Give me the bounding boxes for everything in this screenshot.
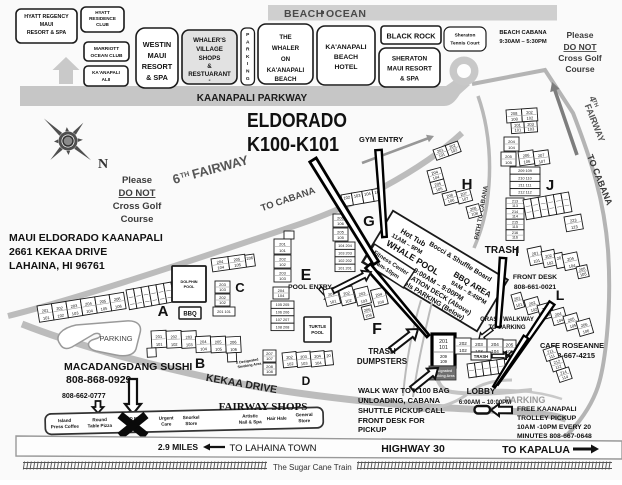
svg-text:CLUB: CLUB	[96, 22, 109, 27]
svg-text:N: N	[98, 157, 108, 172]
svg-text:205: 205	[505, 154, 512, 159]
svg-text:9:30AM – 5:30PM: 9:30AM – 5:30PM	[499, 39, 547, 45]
svg-text:106 206: 106 206	[276, 311, 290, 315]
svg-text:211 111: 211 111	[519, 184, 532, 188]
svg-text:WHALER: WHALER	[272, 45, 300, 52]
svg-text:105 205: 105 205	[276, 303, 290, 307]
svg-text:TRASH: TRASH	[485, 245, 519, 256]
svg-text:101 201: 101 201	[338, 266, 352, 270]
svg-text:SHERATON: SHERATON	[392, 56, 428, 63]
svg-text:VILLAGE: VILLAGE	[196, 46, 223, 53]
svg-text:FAIRWAY SHOPS: FAIRWAY SHOPS	[219, 401, 308, 413]
svg-text:102: 102	[219, 300, 226, 305]
svg-text:107: 107	[266, 356, 273, 361]
svg-text:202: 202	[279, 257, 286, 262]
svg-text:201 101: 201 101	[217, 310, 231, 314]
svg-text:104: 104	[278, 293, 285, 298]
svg-text:204: 204	[508, 139, 515, 144]
svg-text:204: 204	[491, 342, 499, 347]
svg-text:Urgent: Urgent	[159, 415, 174, 420]
svg-text:102: 102	[171, 342, 179, 347]
svg-text:113: 113	[512, 204, 518, 208]
svg-text:214: 214	[512, 210, 518, 214]
svg-text:N: N	[246, 69, 250, 75]
svg-text:107 207: 107 207	[276, 318, 290, 322]
svg-text:10AM -10PM EVERY 20: 10AM -10PM EVERY 20	[517, 424, 591, 431]
svg-text:103: 103	[219, 287, 226, 292]
svg-text:F: F	[372, 321, 382, 338]
svg-text:Artistic: Artistic	[242, 413, 258, 418]
svg-text:103: 103	[527, 126, 535, 132]
svg-text:2.9 MILES: 2.9 MILES	[158, 442, 198, 452]
svg-text:104 204: 104 204	[338, 244, 352, 248]
svg-text:213: 213	[512, 199, 518, 203]
svg-text:Hair Hale: Hair Hale	[267, 416, 287, 421]
svg-text:103: 103	[186, 342, 194, 347]
svg-text:GYM ENTRY: GYM ENTRY	[359, 135, 403, 144]
svg-text:RESORT: RESORT	[142, 62, 173, 71]
svg-text:103 203: 103 203	[338, 252, 352, 256]
svg-text:101: 101	[514, 127, 522, 133]
svg-text:BLACK ROCK: BLACK ROCK	[386, 32, 436, 41]
svg-text:Island: Island	[58, 418, 72, 423]
svg-text:RESORT & SPA: RESORT & SPA	[27, 30, 67, 36]
svg-text:& SPA: & SPA	[146, 73, 168, 82]
svg-text:UNLOADING, CABANA: UNLOADING, CABANA	[358, 396, 441, 405]
svg-text:204: 204	[200, 339, 208, 344]
svg-text:TRASH: TRASH	[368, 347, 396, 356]
svg-text:PARKING: PARKING	[99, 334, 132, 343]
svg-text:DUMPSTERS: DUMPSTERS	[357, 357, 408, 366]
svg-text:202: 202	[526, 110, 534, 116]
svg-text:106: 106	[230, 347, 238, 352]
svg-text:MINUTES 808-667-0648: MINUTES 808-667-0648	[517, 433, 592, 440]
svg-text:205: 205	[506, 343, 514, 348]
svg-text:SHOPS: SHOPS	[199, 55, 221, 62]
svg-text:206: 206	[230, 340, 238, 345]
svg-text:209 109: 209 109	[518, 169, 532, 173]
svg-text:TO KAPALUA: TO KAPALUA	[502, 444, 570, 456]
svg-text:D: D	[302, 374, 311, 388]
svg-text:102: 102	[279, 262, 286, 267]
svg-text:115: 115	[512, 225, 518, 229]
svg-text:MAUI: MAUI	[40, 22, 54, 28]
svg-text:MAUI: MAUI	[148, 51, 167, 60]
svg-text:MACADANGDANG SUSHI: MACADANGDANG SUSHI	[64, 361, 192, 373]
svg-text:208: 208	[511, 111, 519, 117]
svg-text:104: 104	[491, 349, 499, 354]
svg-text:205: 205	[337, 230, 344, 235]
svg-text:-: -	[208, 77, 210, 84]
svg-text:LAHAINA, HI 96761: LAHAINA, HI 96761	[9, 260, 105, 272]
svg-text:202: 202	[170, 334, 178, 339]
svg-text:C: C	[235, 280, 245, 295]
svg-text:Snorkel: Snorkel	[183, 415, 200, 420]
svg-text:210 110: 210 110	[518, 176, 531, 180]
svg-text:Course: Course	[565, 64, 595, 74]
svg-text:POOL: POOL	[311, 330, 324, 335]
svg-text:HOTEL: HOTEL	[334, 64, 357, 71]
svg-text:HYATT: HYATT	[95, 10, 110, 15]
svg-text:212 112: 212 112	[518, 191, 531, 195]
svg-text:ELDORADO: ELDORADO	[247, 110, 347, 132]
svg-text:108: 108	[511, 116, 519, 122]
svg-text:FRONT DESK FOR: FRONT DESK FOR	[358, 416, 425, 425]
svg-text:WESTIN: WESTIN	[143, 40, 171, 49]
svg-text:K100-K101: K100-K101	[247, 134, 339, 156]
svg-text:203: 203	[185, 334, 193, 339]
svg-text:G: G	[363, 213, 375, 230]
svg-text:FRONT DESK: FRONT DESK	[513, 274, 557, 281]
svg-text:MAUI RESORT: MAUI RESORT	[387, 66, 432, 73]
svg-text:RESIDENCE: RESIDENCE	[89, 16, 116, 21]
svg-text:216: 216	[512, 231, 518, 235]
svg-text:Please: Please	[122, 175, 152, 186]
svg-text:109: 109	[440, 359, 448, 364]
svg-text:Please: Please	[567, 30, 594, 40]
svg-text:TO LAHAINA TOWN: TO LAHAINA TOWN	[229, 443, 316, 454]
svg-text:BEACH: BEACH	[284, 8, 324, 20]
svg-text:808-662-0777: 808-662-0777	[62, 393, 106, 400]
svg-text:LOBBY: LOBBY	[467, 387, 496, 396]
svg-text:DO NOT: DO NOT	[119, 188, 156, 199]
svg-text:WALK WAY TO K100 BAG: WALK WAY TO K100 BAG	[358, 386, 450, 395]
svg-text:203: 203	[279, 271, 286, 276]
svg-text:101: 101	[439, 345, 448, 351]
svg-text:105: 105	[505, 160, 512, 165]
svg-text:FREE KAANAPALI: FREE KAANAPALI	[517, 406, 577, 413]
svg-text:Nail & Spa: Nail & Spa	[239, 419, 262, 425]
svg-text:203: 203	[475, 342, 483, 347]
svg-text:105: 105	[215, 346, 223, 351]
svg-text:Tennis Court: Tennis Court	[450, 41, 480, 47]
svg-text:BBQ: BBQ	[183, 312, 197, 318]
svg-text:L: L	[556, 287, 565, 303]
svg-text:A: A	[246, 39, 250, 45]
svg-text:Cross Golf: Cross Golf	[558, 53, 602, 63]
svg-text:114: 114	[512, 214, 518, 218]
svg-text:R: R	[246, 47, 250, 53]
svg-text:B: B	[195, 355, 205, 371]
svg-text:WHALER'S: WHALER'S	[193, 37, 226, 44]
svg-text:116: 116	[512, 236, 518, 240]
svg-text:The Sugar Cane Train: The Sugar Cane Train	[273, 463, 352, 472]
svg-text:Sheraton: Sheraton	[455, 33, 476, 39]
svg-text:104: 104	[508, 145, 515, 150]
svg-text:102: 102	[526, 115, 534, 121]
svg-text:Press Coffee: Press Coffee	[51, 424, 80, 430]
svg-text:103: 103	[279, 276, 286, 281]
svg-text:205: 205	[215, 339, 223, 344]
svg-text:ON: ON	[281, 56, 291, 63]
svg-text:H: H	[462, 176, 473, 193]
svg-text:108: 108	[266, 369, 273, 374]
svg-text:201: 201	[279, 242, 286, 247]
svg-text:Store: Store	[185, 421, 197, 426]
svg-text:GRASS WALKWAY: GRASS WALKWAY	[480, 317, 534, 323]
svg-text:TURTLE: TURTLE	[309, 324, 326, 329]
svg-text:TRASH: TRASH	[474, 354, 488, 359]
svg-text:108 208: 108 208	[276, 325, 290, 329]
svg-text:215: 215	[512, 221, 518, 225]
svg-text:DO NOT: DO NOT	[563, 42, 597, 52]
svg-text:101: 101	[279, 248, 286, 253]
svg-text:SHUTTLE PICKUP CALL: SHUTTLE PICKUP CALL	[358, 406, 445, 415]
svg-text:KAANAPALI PARKWAY: KAANAPALI PARKWAY	[197, 93, 308, 104]
svg-text:105: 105	[337, 235, 344, 240]
svg-text:2661 KEKAA DRIVE: 2661 KEKAA DRIVE	[9, 246, 107, 258]
svg-text:TO PARKING: TO PARKING	[488, 325, 525, 331]
svg-text:Course: Course	[121, 214, 154, 225]
svg-text:808-661-0021: 808-661-0021	[514, 284, 557, 291]
svg-text:KA'ANAPALI: KA'ANAPALI	[325, 44, 366, 51]
svg-text:K: K	[246, 54, 250, 60]
svg-text:BEACH: BEACH	[274, 76, 297, 83]
svg-text:Round: Round	[92, 417, 107, 422]
svg-text:ALII: ALII	[102, 77, 111, 82]
svg-text:A: A	[158, 303, 169, 320]
svg-text:102: 102	[459, 348, 467, 353]
svg-text:MARRIOTT: MARRIOTT	[94, 46, 119, 52]
svg-text:THE: THE	[279, 34, 291, 41]
svg-text:J: J	[546, 177, 554, 194]
svg-text:101: 101	[156, 342, 164, 347]
svg-text:DOLPHIN: DOLPHIN	[180, 280, 197, 284]
svg-text:102 202: 102 202	[338, 259, 352, 263]
svg-text:Store: Store	[298, 418, 310, 423]
svg-text:808-868-0929: 808-868-0929	[66, 374, 132, 386]
svg-text:& SPA: & SPA	[400, 76, 419, 83]
svg-text:OCEAN CLUB: OCEAN CLUB	[91, 53, 124, 59]
svg-text:PICKUP: PICKUP	[358, 425, 386, 434]
svg-text:G: G	[246, 76, 250, 82]
svg-text:OCEAN: OCEAN	[326, 8, 366, 20]
svg-text:BEACH CABANA: BEACH CABANA	[499, 30, 547, 36]
svg-text:Table Pizza: Table Pizza	[88, 423, 113, 429]
svg-text:106: 106	[337, 221, 344, 226]
svg-text:TROLLEY PICKUP: TROLLEY PICKUP	[517, 415, 577, 422]
svg-text:104: 104	[200, 346, 208, 351]
svg-text:&: &	[207, 63, 212, 70]
svg-text:MAUI ELDORADO KAANAPALI: MAUI ELDORADO KAANAPALI	[9, 232, 163, 244]
svg-text:BEACH: BEACH	[334, 54, 358, 61]
svg-text:201: 201	[155, 334, 163, 339]
svg-text:HIGHWAY 30: HIGHWAY 30	[381, 443, 445, 455]
svg-text:KA'ANAPALI: KA'ANAPALI	[267, 67, 305, 74]
svg-text:202: 202	[459, 341, 467, 346]
svg-text:Cross Golf: Cross Golf	[113, 201, 162, 212]
svg-text:Care: Care	[161, 421, 172, 426]
svg-text:HYATT REGENCY: HYATT REGENCY	[24, 14, 69, 20]
svg-text:E: E	[301, 267, 312, 284]
svg-text:KA'ANAPALI: KA'ANAPALI	[92, 70, 120, 75]
svg-text:POOL: POOL	[184, 285, 195, 289]
